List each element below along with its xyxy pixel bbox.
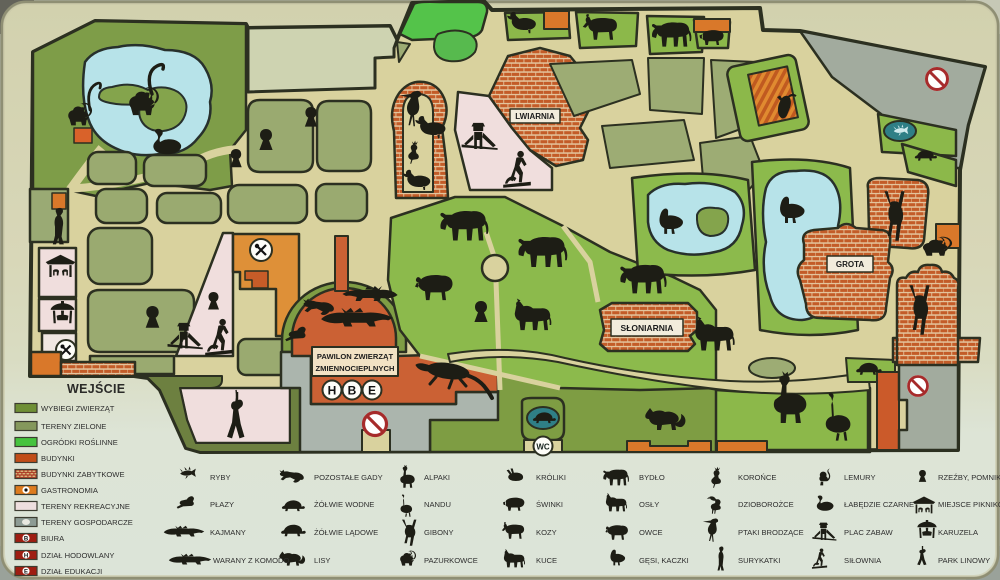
svg-text:H: H (328, 384, 337, 398)
svg-text:DZIAŁ HODOWLANY: DZIAŁ HODOWLANY (41, 551, 114, 560)
svg-text:KARUZELA: KARUZELA (938, 528, 979, 537)
svg-text:BUDYNKI ZABYTKOWE: BUDYNKI ZABYTKOWE (41, 470, 125, 479)
svg-text:SŁONIARNIA: SŁONIARNIA (621, 323, 674, 333)
svg-text:ŻÓŁWIE WODNE: ŻÓŁWIE WODNE (314, 500, 374, 509)
svg-text:ŁABĘDZIE CZARNE: ŁABĘDZIE CZARNE (844, 500, 914, 509)
svg-text:TERENY ZIELONE: TERENY ZIELONE (41, 422, 106, 431)
svg-text:OSŁY: OSŁY (639, 500, 659, 509)
svg-text:PAZURKOWCE: PAZURKOWCE (424, 556, 478, 565)
svg-text:OGRÓDKI ROŚLINNE: OGRÓDKI ROŚLINNE (41, 438, 118, 447)
svg-text:PARK LINOWY: PARK LINOWY (938, 556, 990, 565)
svg-text:B: B (24, 537, 29, 543)
svg-text:KAJMANY: KAJMANY (210, 528, 246, 537)
svg-text:KRÓLIKI: KRÓLIKI (536, 473, 566, 482)
svg-text:BIURA: BIURA (41, 534, 65, 543)
svg-text:E: E (368, 384, 376, 398)
svg-text:NANDU: NANDU (424, 500, 451, 509)
svg-text:WC: WC (536, 443, 550, 452)
svg-text:ŻÓŁWIE LĄDOWE: ŻÓŁWIE LĄDOWE (314, 528, 378, 537)
svg-text:RYBY: RYBY (210, 473, 231, 482)
svg-text:GIBONY: GIBONY (424, 528, 454, 537)
svg-text:OWCE: OWCE (639, 528, 663, 537)
svg-text:PŁAZY: PŁAZY (210, 500, 234, 509)
svg-text:DZIAŁ EDUKACJI: DZIAŁ EDUKACJI (41, 567, 102, 576)
svg-text:GASTRONOMIA: GASTRONOMIA (41, 486, 99, 495)
svg-text:LEMURY: LEMURY (844, 473, 876, 482)
svg-text:PTAKI BRODZĄCE: PTAKI BRODZĄCE (738, 528, 804, 537)
svg-text:GROTA: GROTA (836, 260, 865, 269)
svg-text:WARANY Z KOMODO: WARANY Z KOMODO (213, 556, 289, 565)
svg-text:BYDŁO: BYDŁO (639, 473, 665, 482)
svg-text:GĘSI, KACZKI: GĘSI, KACZKI (639, 556, 689, 565)
svg-text:PLAC ZABAW: PLAC ZABAW (844, 528, 893, 537)
svg-text:BUDYNKI: BUDYNKI (41, 454, 75, 463)
svg-text:KOROŃCE: KOROŃCE (738, 473, 776, 482)
svg-text:ALPAKI: ALPAKI (424, 473, 450, 482)
svg-text:POZOSTAŁE GADY: POZOSTAŁE GADY (314, 473, 383, 482)
svg-text:WEJŚCIE: WEJŚCIE (67, 381, 125, 396)
svg-text:ŚWINKI: ŚWINKI (536, 500, 563, 509)
svg-text:H: H (24, 554, 28, 560)
svg-text:WYBIEGI ZWIERZĄT: WYBIEGI ZWIERZĄT (41, 404, 115, 413)
svg-text:TERENY GOSPODARCZE: TERENY GOSPODARCZE (41, 518, 133, 527)
svg-text:MIEJSCE PIKNIKOWE: MIEJSCE PIKNIKOWE (938, 500, 1000, 509)
svg-text:TERENY REKREACYJNE: TERENY REKREACYJNE (41, 502, 130, 511)
svg-text:KUCE: KUCE (536, 556, 557, 565)
svg-text:DZIOBOROŻCE: DZIOBOROŻCE (738, 500, 794, 509)
svg-text:LISY: LISY (314, 556, 330, 565)
svg-text:ZMIENNOCIEPLNYCH: ZMIENNOCIEPLNYCH (316, 364, 395, 373)
svg-text:LWIARNIA: LWIARNIA (515, 112, 555, 121)
svg-text:PAWILON ZWIERZĄT: PAWILON ZWIERZĄT (317, 352, 394, 361)
svg-text:E: E (24, 570, 28, 576)
svg-text:RZEŹBY, POMNIKI: RZEŹBY, POMNIKI (938, 473, 1000, 482)
svg-text:SIŁOWNIA: SIŁOWNIA (844, 556, 882, 565)
svg-text:SURYKATKI: SURYKATKI (738, 556, 780, 565)
svg-text:B: B (348, 384, 357, 398)
svg-text:KOZY: KOZY (536, 528, 557, 537)
